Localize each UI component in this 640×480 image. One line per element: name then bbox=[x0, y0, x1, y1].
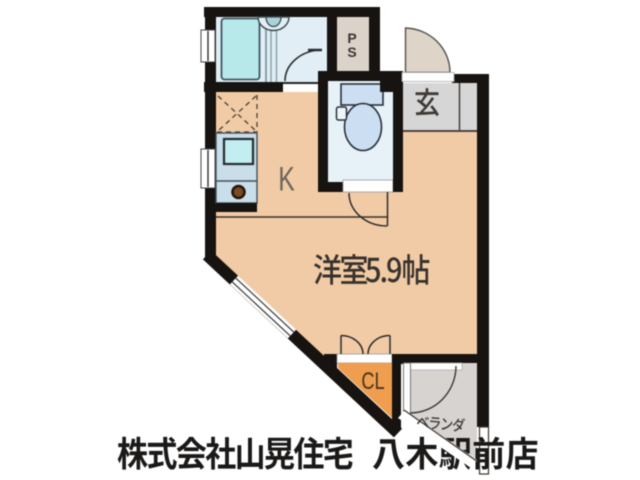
svg-text:CL: CL bbox=[361, 368, 384, 395]
svg-text:K: K bbox=[278, 161, 295, 199]
svg-text:S: S bbox=[347, 44, 356, 60]
